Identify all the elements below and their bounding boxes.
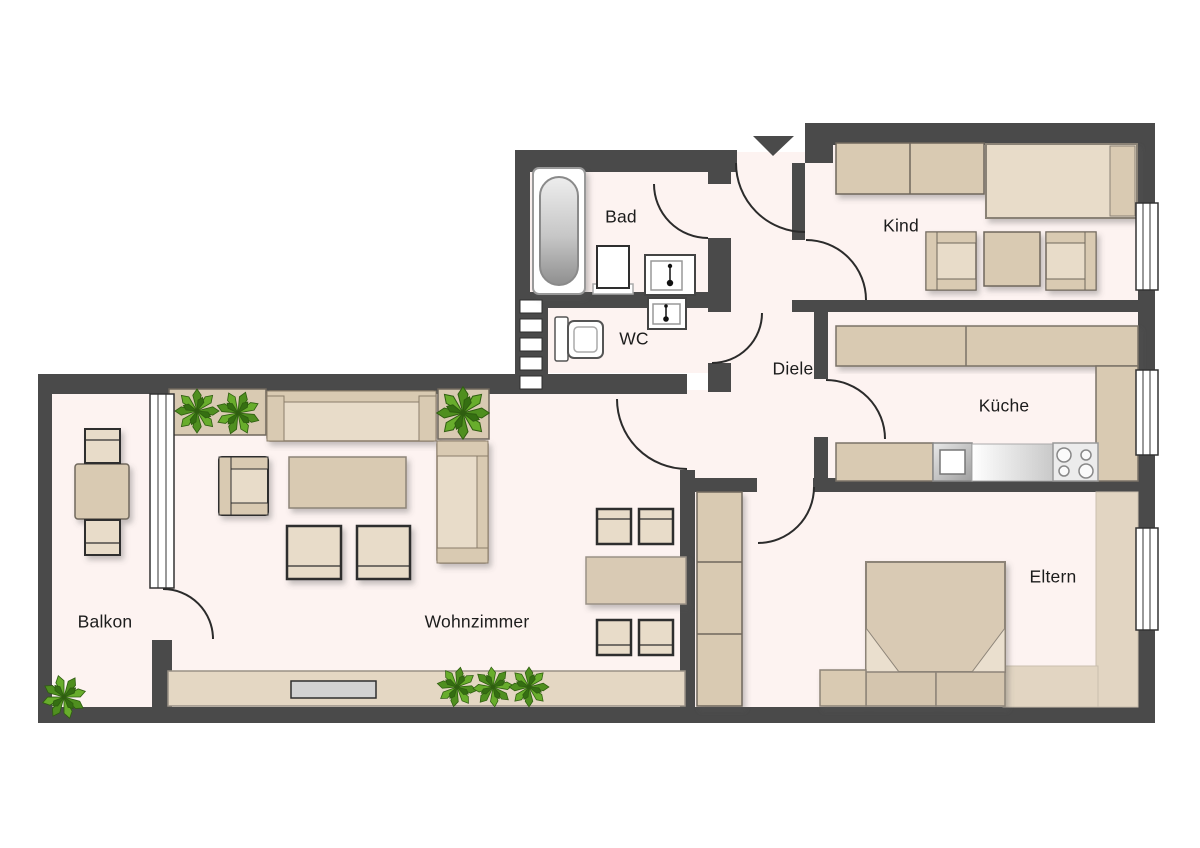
wall-segment bbox=[38, 707, 1155, 723]
bed-eltern bbox=[866, 562, 1005, 706]
floorplan-canvas bbox=[0, 0, 1200, 848]
room-label-eltern: Eltern bbox=[1030, 567, 1077, 588]
dining-chair-3 bbox=[597, 620, 631, 655]
sideboard bbox=[168, 671, 685, 706]
washbasin-wc bbox=[648, 298, 686, 329]
sofa-side bbox=[437, 441, 488, 563]
window-balkon bbox=[150, 394, 174, 588]
window-kueche bbox=[1136, 370, 1158, 455]
plant-icon bbox=[437, 387, 490, 440]
armchair bbox=[219, 457, 268, 515]
chair-kind-right bbox=[1046, 232, 1096, 290]
room-label-balkon: Balkon bbox=[78, 612, 133, 633]
kitchen-counter-top bbox=[836, 326, 1138, 366]
room-label-kueche: Küche bbox=[979, 396, 1030, 417]
side-chair-1 bbox=[287, 526, 341, 579]
wall-segment bbox=[792, 163, 805, 240]
floorplan-page: Bad WC Diele Kind Küche Eltern Wohnzimme… bbox=[0, 0, 1200, 848]
kitchen-counter-bottom bbox=[836, 443, 933, 481]
dining-table bbox=[586, 557, 686, 604]
bed-kind bbox=[986, 144, 1137, 218]
wall-segment bbox=[814, 312, 828, 379]
stove bbox=[1053, 443, 1098, 481]
wall-segment bbox=[1138, 630, 1155, 723]
washbasin-bad bbox=[645, 255, 695, 295]
shower-tray bbox=[593, 246, 633, 294]
plant-icon bbox=[509, 667, 549, 707]
wall-segment bbox=[1138, 145, 1155, 203]
dining-chair-2 bbox=[639, 509, 673, 544]
room-label-kind: Kind bbox=[883, 216, 919, 237]
window-eltern bbox=[1136, 528, 1158, 630]
wardrobe-kind bbox=[836, 143, 984, 194]
wall-segment bbox=[1138, 290, 1155, 370]
sofa-long bbox=[267, 391, 436, 441]
side-chair-2 bbox=[357, 526, 410, 579]
wall-segment bbox=[1138, 455, 1155, 528]
wall-segment bbox=[708, 363, 731, 392]
toilet bbox=[555, 317, 603, 361]
coffee-table bbox=[289, 457, 406, 508]
wall-segment bbox=[792, 300, 1138, 312]
wardrobe-eltern bbox=[697, 492, 742, 706]
kitchen-counter-right bbox=[1096, 366, 1138, 481]
wall-segment bbox=[38, 374, 52, 722]
chair-kind-left bbox=[926, 232, 976, 290]
kueche-door-threshold bbox=[814, 379, 828, 437]
bathtub bbox=[533, 168, 585, 294]
room-label-bad: Bad bbox=[605, 207, 637, 228]
balcony-chair-bottom bbox=[85, 520, 120, 555]
window-kind bbox=[1136, 203, 1158, 290]
plant-icon bbox=[175, 389, 219, 433]
room-label-wohnzimmer: Wohnzimmer bbox=[425, 612, 530, 633]
tv-board bbox=[291, 681, 376, 698]
dining-chair-4 bbox=[639, 620, 673, 655]
wall-segment bbox=[708, 238, 731, 312]
table-kind bbox=[984, 232, 1040, 286]
wall-segment bbox=[708, 172, 731, 184]
room-label-wc: WC bbox=[619, 329, 649, 350]
kitchen-sink bbox=[933, 443, 972, 481]
kitchen-drainer bbox=[972, 444, 1053, 481]
balcony-door-threshold bbox=[152, 588, 174, 640]
balcony-table bbox=[75, 464, 129, 519]
balcony-chair-top bbox=[85, 429, 120, 463]
wall-segment bbox=[805, 123, 1155, 145]
nightstand-eltern bbox=[820, 670, 866, 706]
room-label-diele: Diele bbox=[773, 359, 814, 380]
radiator-shaft bbox=[520, 300, 542, 389]
dining-chair-1 bbox=[597, 509, 631, 544]
